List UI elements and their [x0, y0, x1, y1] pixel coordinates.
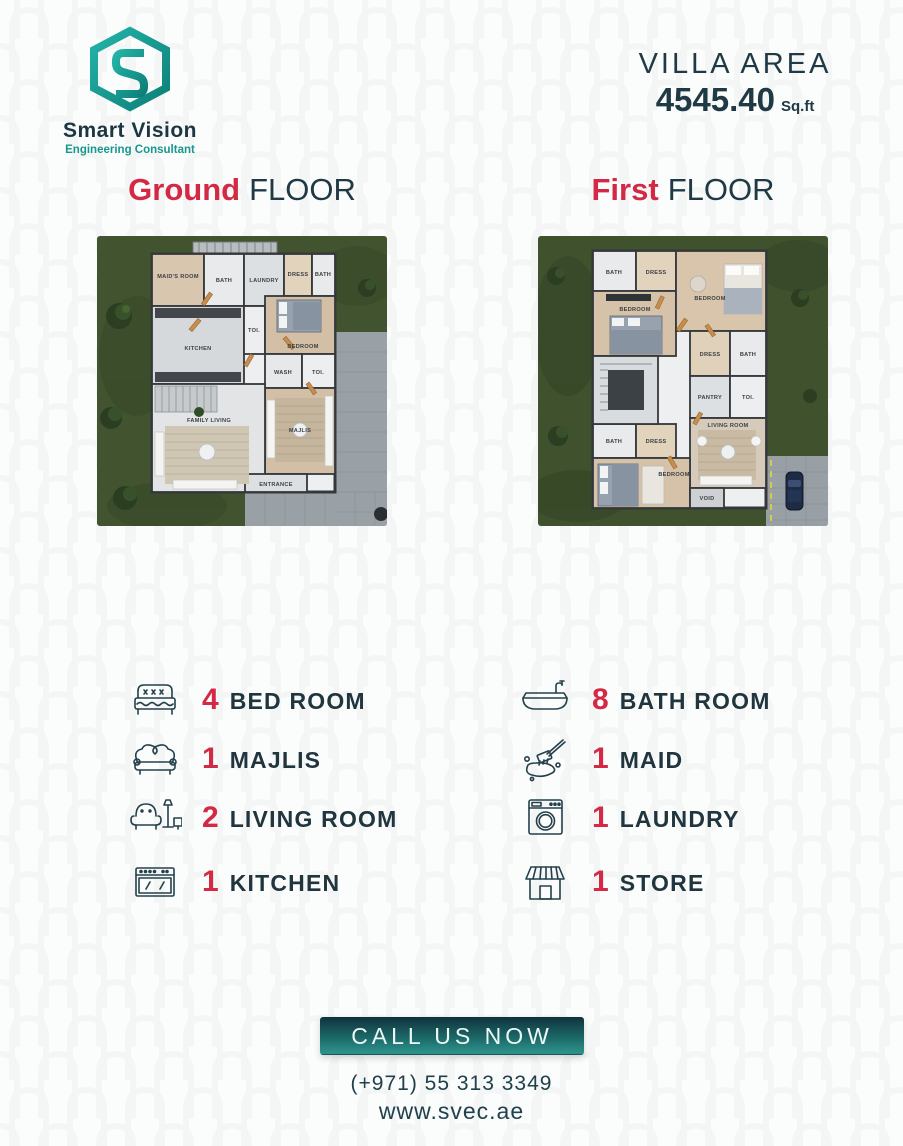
flyer-page: Smart Vision Engineering Consultant VILL… [0, 0, 903, 1146]
bathtub-icon [516, 676, 574, 724]
feature-living-room: 2 LIVING ROOM [126, 794, 398, 842]
room-label: DRESS [288, 272, 309, 278]
car-top-view [786, 472, 803, 510]
villa-area-label: VILLA AREA [590, 48, 880, 81]
feature-majlis: 1 MAJLIS [126, 735, 321, 783]
room-label: LAUNDRY [249, 278, 278, 284]
feature-count: 1 [592, 801, 609, 835]
room-label: TOI. [742, 395, 754, 401]
room-label: KITCHEN [185, 346, 212, 352]
feature-store: 1 STORE [516, 858, 705, 906]
ground-floor-title-rest: FLOOR [249, 172, 356, 207]
feature-laundry: 1 LAUNDRY [516, 794, 740, 842]
stove-icon [126, 858, 184, 906]
room-label: BEDROOM [694, 296, 725, 302]
shop-icon [516, 858, 574, 906]
armchair-lamp-icon [126, 794, 184, 842]
feature-bath-room: 8 BATH ROOM [516, 676, 771, 724]
feature-count: 4 [202, 683, 219, 717]
ground-floor-title-accent: Ground [128, 172, 240, 207]
washing-machine-icon [516, 794, 574, 842]
room-label: BATH [740, 352, 756, 358]
feature-label: MAJLIS [230, 747, 322, 774]
room-label: BEDROOM [287, 344, 318, 350]
feature-label: MAID [620, 747, 684, 774]
smart-vision-logo-icon [78, 26, 182, 112]
feature-bed-room: 4 BED ROOM [126, 676, 366, 724]
bed-icon [126, 676, 184, 724]
cleaning-mop-icon [516, 735, 574, 783]
room-label: BEDROOM [658, 472, 689, 478]
feature-count: 1 [202, 865, 219, 899]
sofa-icon [126, 735, 184, 783]
room-label: DRESS [700, 352, 721, 358]
brand-block: Smart Vision Engineering Consultant [30, 26, 230, 156]
room-label: DRESS [646, 439, 667, 445]
room-label: BEDROOM [619, 307, 650, 313]
brand-tagline: Engineering Consultant [30, 144, 230, 156]
room-label: LIVING ROOM [708, 423, 749, 429]
room-label: MAJLIS [289, 428, 311, 434]
feature-maid: 1 MAID [516, 735, 683, 783]
feature-label: BATH ROOM [620, 688, 771, 715]
room-label: MAID'S ROOM [157, 274, 199, 280]
website-url: www.svec.ae [0, 1098, 903, 1125]
room-label: ENTRANCE [259, 482, 292, 488]
room-label: PANTRY [698, 395, 722, 401]
first-floor-plan-image: BATH DRESS BEDROOM BEDROOM DRESS BATH PA… [538, 236, 828, 526]
room-label: BATH [315, 272, 331, 278]
ground-floor-title: GroundFLOOR [97, 172, 387, 208]
feature-label: LAUNDRY [620, 806, 740, 833]
room-label: BATH [216, 278, 232, 284]
brand-name: Smart Vision [30, 119, 230, 143]
room-label: FAMILY LIVING [187, 418, 231, 424]
feature-count: 1 [592, 742, 609, 776]
feature-count: 8 [592, 683, 609, 717]
room-label: TOI. [248, 328, 260, 334]
feature-label: KITCHEN [230, 870, 341, 897]
villa-area-value: 4545.40 [656, 81, 775, 118]
feature-count: 1 [202, 742, 219, 776]
feature-count: 2 [202, 801, 219, 835]
villa-area-block: VILLA AREA 4545.40Sq.ft [590, 48, 880, 119]
room-label: BATH [606, 439, 622, 445]
villa-area-unit: Sq.ft [781, 98, 814, 115]
room-label: WASH [274, 370, 292, 376]
feature-label: STORE [620, 870, 705, 897]
feature-count: 1 [592, 865, 609, 899]
ground-floor-plan-image: MAID'S ROOM BATH LAUNDRY DRESS BATH KITC… [97, 236, 387, 526]
first-floor-title-accent: First [592, 172, 659, 207]
room-label: TOI. [312, 370, 324, 376]
call-us-now-button[interactable]: CALL US NOW [320, 1017, 584, 1055]
first-floor-title-rest: FLOOR [668, 172, 775, 207]
feature-label: BED ROOM [230, 688, 366, 715]
room-label: VOID [700, 496, 715, 502]
feature-kitchen: 1 KITCHEN [126, 858, 340, 906]
room-label: BATH [606, 270, 622, 276]
feature-label: LIVING ROOM [230, 806, 398, 833]
phone-number: (+971) 55 313 3349 [0, 1072, 903, 1096]
room-label: DRESS [646, 270, 667, 276]
first-floor-title: FirstFLOOR [538, 172, 828, 208]
